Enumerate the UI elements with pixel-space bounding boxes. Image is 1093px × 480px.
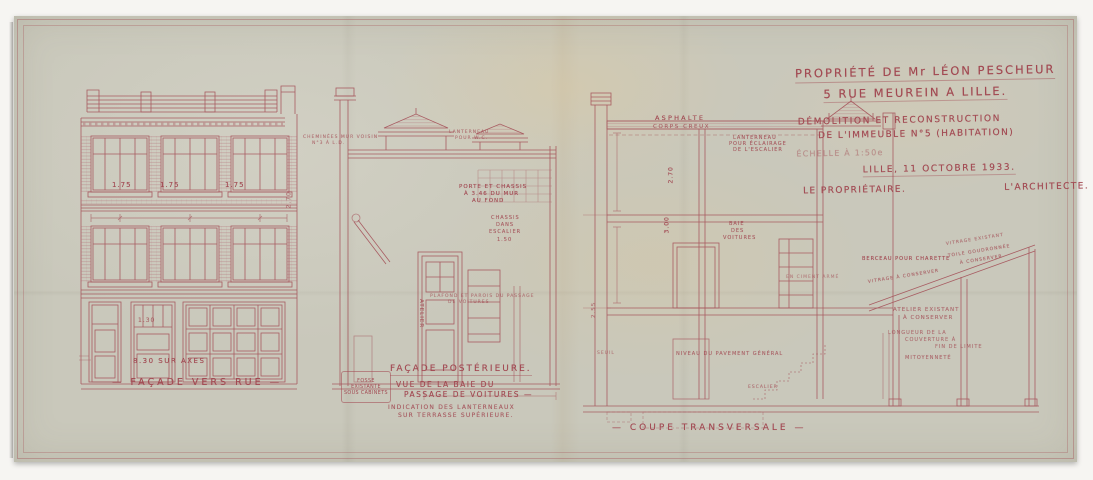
annotation: MITOYENNETÉ [905, 355, 952, 361]
annotation: BERCEAU POUR CHARETTE [862, 256, 950, 262]
annotation: DANS [496, 222, 514, 228]
work-description-line1: DÉMOLITION ET RECONSTRUCTION [798, 112, 1088, 127]
annotation: 2.55 [591, 302, 597, 318]
rear-facade-note-2: SUR TERRASSE SUPÉRIEURE. [398, 412, 514, 419]
annotation: ASPHALTE [655, 114, 705, 122]
annotation: DE L'ESCALIER [733, 147, 783, 153]
annotation: 3.00 [664, 216, 671, 233]
street-facade-caption: — FAÇADE VERS RUE — [112, 377, 282, 388]
rear-facade-note-1: INDICATION DES LANTERNEAUX [388, 404, 515, 411]
date-line: LILLE, 11 OCTOBRE 1933. [863, 163, 1016, 178]
annotation: 1.75 [160, 181, 180, 189]
annotation: 1.75 [112, 181, 132, 189]
section-caption: — COUPE TRANSVERSALE — [612, 423, 806, 433]
annotation: VOITURES [723, 235, 756, 241]
annotation: 8.30 SUR AXES [133, 357, 205, 365]
annotation: N°3 À L.D. [312, 141, 345, 146]
annotation: 2.70 [286, 191, 293, 208]
annotation: LANTERNEAU [449, 130, 489, 135]
annotation: ATELIER [418, 299, 424, 328]
annotation: ATELIER EXISTANT [893, 307, 959, 313]
annotation: CHASSIS [491, 215, 520, 221]
street-facade-elevation-drawing [79, 84, 299, 399]
fosse-line-3: SOUS CABINETS [342, 391, 390, 396]
annotation: 1.50 [497, 237, 512, 243]
fosse-line-1: FOSSE [342, 379, 390, 384]
annotation: ESCALIER [748, 385, 778, 390]
sheet-edge-shadow [9, 22, 13, 458]
fosse-callout-box: FOSSE EXISTANTE SOUS CABINETS [341, 371, 391, 403]
title-block: PROPRIÉTÉ DE Mr LÉON PESCHEUR 5 RUE MEUR… [795, 57, 1089, 196]
annotation: BAIE [729, 221, 744, 227]
annotation: FIN DE LIMITE [935, 344, 983, 350]
annotation: PORTE ET CHASSIS [459, 184, 527, 190]
annotation: ESCALIER [489, 229, 521, 235]
annotation: À 3.46 DU MUR [464, 191, 519, 197]
architect-signature-label: L'ARCHITECTE. [1004, 181, 1089, 192]
annotation: DE VOITURES [448, 300, 489, 305]
annotation: 1.30 [138, 317, 155, 324]
property-address: 5 RUE MEUREIN A LILLE. [823, 84, 1007, 103]
annotation: NIVEAU DU PAVEMENT GÉNÉRAL [676, 351, 783, 357]
work-description-line2: DE L'IMMEUBLE N°5 (HABITATION) [818, 126, 1088, 141]
annotation: 2.70 [668, 166, 675, 183]
rear-facade-subcaption-2: PASSAGE DE VOITURES — [404, 390, 533, 399]
annotation: EN CIMENT ARMÉ [786, 275, 839, 280]
annotation: DES [731, 228, 744, 234]
fosse-line-2: EXISTANTE [342, 385, 390, 390]
scanned-plan-page: PROPRIÉTÉ DE Mr LÉON PESCHEUR 5 RUE MEUR… [0, 0, 1093, 480]
rear-facade-caption: FAÇADE POSTÉRIEURE. [390, 364, 532, 376]
annotation: 1.75 [225, 181, 245, 189]
annotation: CORPS CREUX [653, 124, 710, 130]
owner-signature-label: LE PROPRIÉTAIRE. [803, 185, 906, 197]
annotation: COUVERTURE À [905, 337, 956, 343]
annotation: À CONSERVER [903, 315, 953, 321]
annotation: CHEMINÉES MUR VOISIN [303, 135, 378, 140]
annotation: SEUIL [597, 351, 615, 356]
annotation: POUR W.C. [455, 136, 488, 141]
annotation: PLAFOND ET PAROIS DU PASSAGE [430, 294, 534, 299]
annotation: AU FOND [472, 198, 504, 204]
annotation: LONGUEUR DE LA [888, 330, 947, 336]
rear-facade-subcaption-1: VUE DE LA BAIE DU [396, 380, 495, 389]
